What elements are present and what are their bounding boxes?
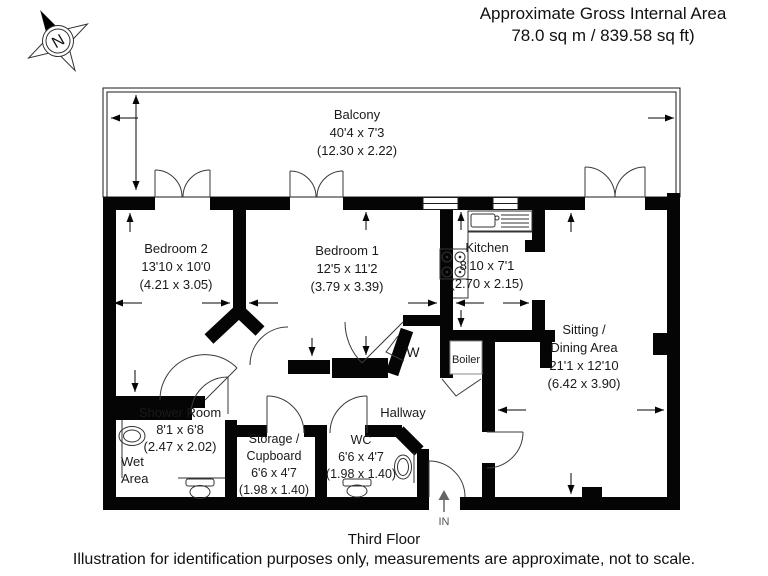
storage-cupboard-label: Storage / Cupboard 6'6 x 4'7 (1.98 x 1.4…	[239, 431, 309, 499]
disclaimer-text: Illustration for identification purposes…	[0, 551, 768, 569]
wardrobe-label: W	[406, 343, 419, 361]
compass-icon: N	[12, 0, 105, 87]
shower-room-label: Shower Room 8'1 x 6'8 (2.47 x 2.02)	[139, 404, 221, 455]
balcony-door-bedroom2	[155, 170, 210, 197]
wc-door	[330, 396, 367, 433]
floorplan-drawing: N	[0, 0, 768, 576]
storage-door	[267, 396, 304, 433]
wet-area-label: Wet Area	[121, 453, 148, 487]
balcony-door-bedroom1	[290, 171, 343, 197]
header-line1: Approximate Gross Internal Area	[480, 4, 727, 23]
hallway-label: Hallway	[380, 404, 426, 422]
kitchen-label: Kitchen 8'10 x 7'1 (2.70 x 2.15)	[451, 239, 524, 293]
entrance-door	[429, 461, 465, 497]
balcony-door-sitting	[585, 167, 645, 197]
balcony-label: Balcony 40'4 x 7'3 (12.30 x 2.22)	[317, 106, 397, 160]
floorplan-page: N	[0, 0, 768, 576]
sitting-dining-label: Sitting / Dining Area 21'1 x 12'10 (6.42…	[548, 321, 621, 393]
boiler-label: Boiler	[452, 351, 480, 369]
header-line2: 78.0 sq m / 839.58 sq ft)	[511, 26, 694, 45]
floor-name: Third Floor	[0, 531, 768, 548]
bedroom2-label: Bedroom 2 13'10 x 10'0 (4.21 x 3.05)	[140, 240, 213, 294]
entrance-in-arrow	[439, 490, 450, 512]
sitting-room-door	[487, 432, 523, 468]
wc-basin	[395, 452, 415, 483]
wc-label: WC 6'6 x 4'7 (1.98 x 1.40)	[326, 432, 396, 483]
bedroom1-label: Bedroom 1 12'5 x 11'2 (3.79 x 3.39)	[311, 242, 384, 296]
shower-toilet	[178, 478, 225, 499]
kitchen-sink	[468, 211, 532, 231]
boiler-bifold-door	[442, 379, 481, 396]
entrance-in-label: IN	[439, 513, 450, 531]
gross-internal-area-header: Approximate Gross Internal Area 78.0 sq …	[453, 3, 753, 47]
